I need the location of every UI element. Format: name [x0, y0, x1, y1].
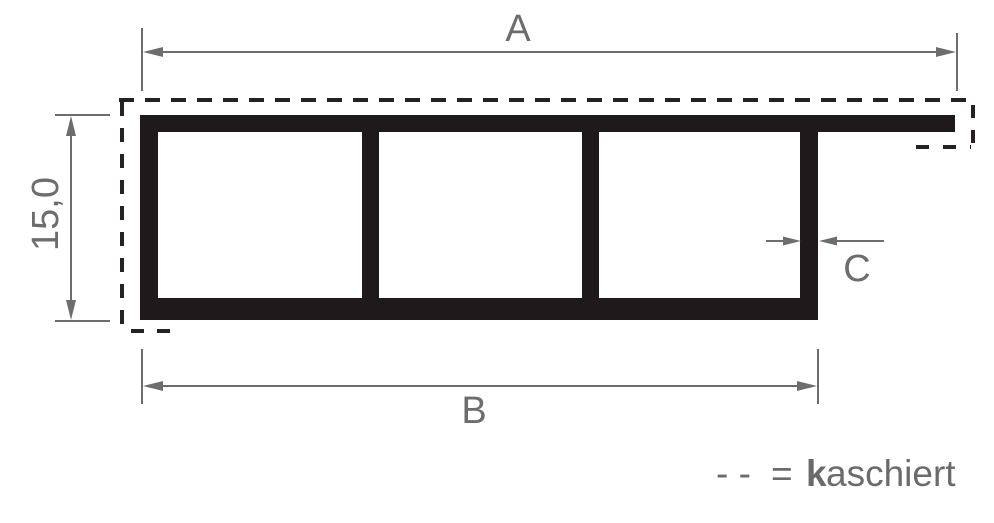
legend-term-rest: aschiert — [826, 453, 956, 494]
dimension-overall-width: A — [142, 8, 957, 91]
legend-line: - - = k aschiert — [716, 453, 956, 494]
dim-height-label: 15,0 — [25, 177, 67, 251]
legend-equals-sign: = — [771, 453, 793, 494]
dim-b-label: B — [461, 390, 486, 432]
dim-c-label: C — [843, 248, 870, 290]
profile-top-flange — [815, 115, 955, 132]
dim-h-arrow-bottom — [66, 300, 76, 320]
profile-chamber-3 — [599, 132, 800, 298]
profile-cross-section — [140, 115, 955, 320]
legend: - - = k aschiert — [716, 453, 956, 494]
dim-a-label: A — [505, 8, 531, 50]
profile-chamber-1 — [158, 132, 362, 298]
dim-b-arrow-right — [797, 381, 817, 391]
dim-b-arrow-left — [143, 381, 163, 391]
profile-drawing: A 15,0 B C — [0, 0, 994, 523]
legend-term-bold: k — [806, 453, 827, 494]
dimension-height: 15,0 — [25, 115, 110, 321]
dimension-body-width: B — [142, 349, 818, 432]
dim-c-arrow-right — [819, 237, 837, 246]
dim-a-arrow-left — [143, 47, 163, 57]
dim-h-arrow-top — [66, 116, 76, 136]
drawing-canvas: A 15,0 B C — [0, 0, 994, 523]
profile-chamber-2 — [379, 132, 582, 298]
legend-dash-symbol: - - — [716, 453, 751, 494]
dim-a-arrow-right — [936, 47, 956, 57]
